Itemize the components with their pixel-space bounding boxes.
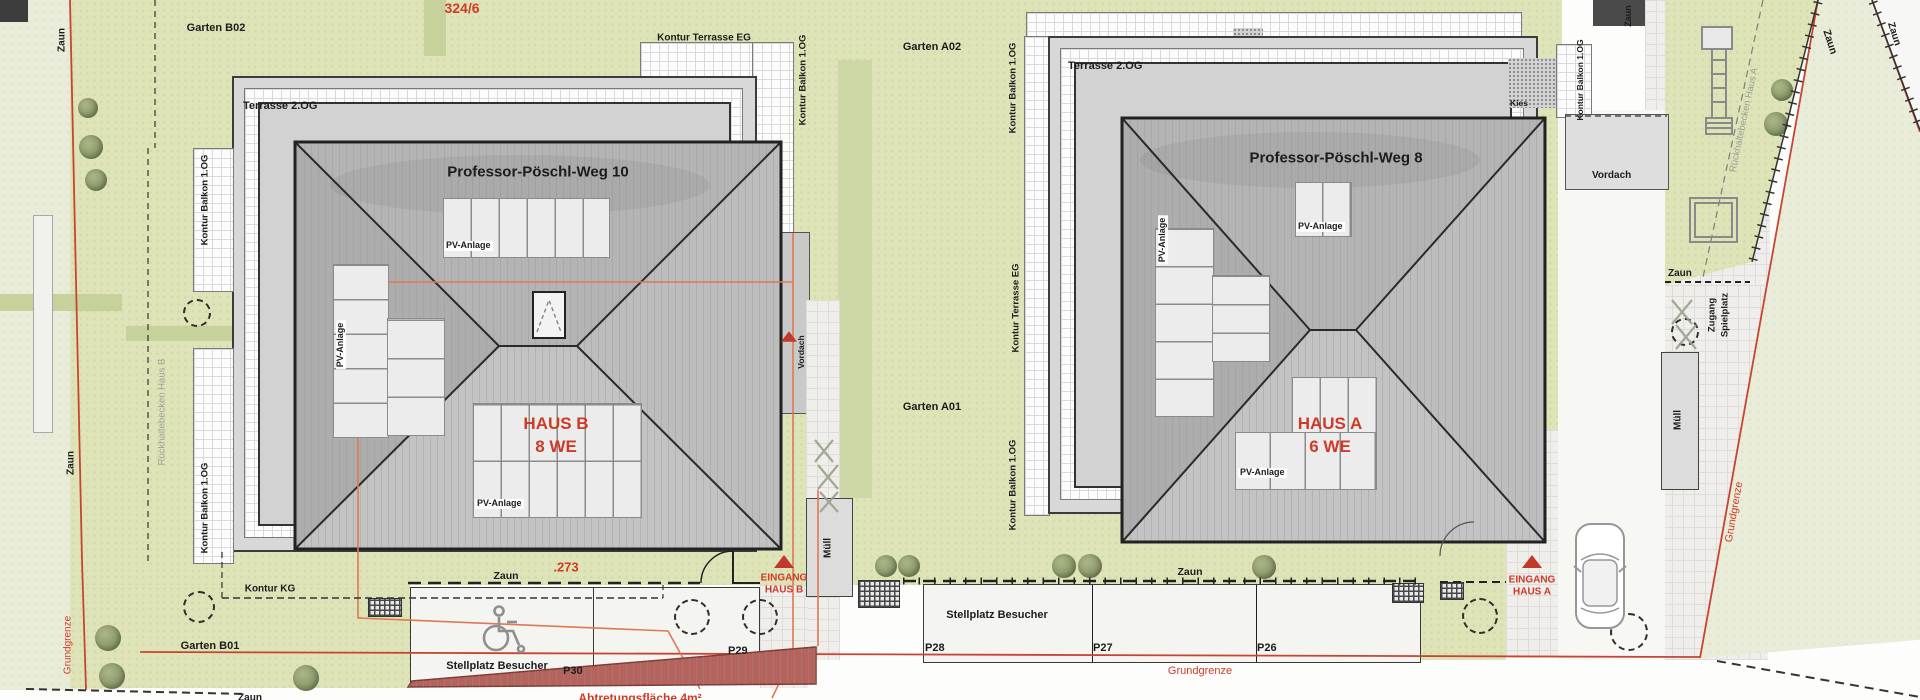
stellplatz-left-label: Stellplatz Besucher (446, 660, 547, 672)
balcony-contour-a-w (1024, 36, 1050, 516)
rueckhaltebecken-b-label: Rückhaltebecken Haus B (157, 359, 168, 466)
p26-label: P26 (1257, 642, 1277, 654)
terrasse-2og-b-label: Terrasse 2.OG (243, 100, 317, 112)
kontur-balkon-b-ne-label: Kontur Balkon 1.OG (798, 35, 809, 126)
pv-array-a-bottom-2 (1235, 432, 1377, 490)
hedge-left-1 (0, 294, 122, 311)
parcel-number: 324/6 (444, 0, 479, 16)
site-plan: 324/6 Garten B02 Kontur Terrasse EG Kont… (0, 0, 1920, 700)
balcony-contour-a-ne (1556, 44, 1592, 118)
tree (79, 135, 103, 159)
grundgrenze-left-label: Grundgrenze (63, 616, 74, 674)
kontur-terrasse-eg-b-label: Kontur Terrasse EG (657, 33, 751, 44)
abtretung-label: Abtretungsfläche 4m² (578, 691, 701, 700)
sidewalk-left (33, 215, 53, 433)
kontur-balkon-b-w-top-label: Kontur Balkon 1.OG (200, 155, 211, 246)
haus-a-title: Professor-Pöschl-Weg 8 (1249, 150, 1422, 167)
tree (875, 555, 897, 577)
eingang-a-line2: HAUS A (1513, 587, 1551, 598)
zaun-b-fence-label: Zaun (493, 570, 518, 582)
dimension-273: .273 (553, 560, 578, 575)
pv-label-a-bottom: PV-Anlage (1238, 468, 1287, 478)
haus-a-name: HAUS A (1298, 414, 1363, 434)
zugang-spielplatz-line1: Zugang (1707, 298, 1718, 332)
haus-b-name: HAUS B (523, 414, 588, 434)
tree (898, 555, 920, 577)
tree (1052, 554, 1076, 578)
planned-tree (183, 591, 215, 623)
pv-label-b-left: PV-Anlage (336, 321, 346, 370)
tree (78, 98, 98, 118)
pv-label-a-top: PV-Anlage (1296, 222, 1345, 232)
entrance-arrow-a (1522, 555, 1542, 568)
parking-lot-p28-p26 (923, 584, 1421, 663)
haus-b-units: 8 WE (535, 437, 577, 457)
stellplatz-mid-label: Stellplatz Besucher (946, 609, 1047, 621)
p27-label: P27 (1093, 642, 1113, 654)
grundgrenze-bottom-label: Grundgrenze (1168, 665, 1232, 677)
zugang-spielplatz-line2: Spielplatz (1720, 293, 1731, 337)
vordach-b-label: Vordach (796, 335, 806, 368)
planned-tree (1610, 613, 1648, 651)
tree (85, 169, 107, 191)
pv-label-b-top: PV-Anlage (444, 241, 493, 251)
zaun-bottom-cut-label: Zaun (238, 693, 262, 700)
garten-b02-label: Garten B02 (187, 22, 246, 34)
zaun-mid-label: Zaun (1177, 566, 1202, 578)
zaun-left-top-label: Zaun (57, 28, 68, 52)
planned-tree (674, 599, 710, 635)
paving-hatch-3 (1392, 583, 1424, 603)
p30-label: P30 (563, 665, 583, 677)
eingang-b-line1: EINGANG (761, 573, 808, 584)
vordach-a-label: Vordach (1592, 170, 1631, 181)
kontur-balkon-a-nw-label: Kontur Balkon 1.OG (1008, 43, 1019, 134)
eingang-b-line2: HAUS B (765, 585, 803, 596)
tree (95, 625, 121, 651)
block-top-left (0, 0, 28, 22)
p28-label: P28 (925, 642, 945, 654)
tree (1771, 79, 1793, 101)
walkway-between-houses (806, 300, 840, 660)
planned-tree (1671, 318, 1699, 346)
paving-hatch-2 (858, 580, 900, 608)
eingang-a-line1: EINGANG (1509, 575, 1556, 586)
garten-a02-label: Garten A02 (903, 41, 961, 53)
kontur-terrasse-eg-a-label: Kontur Terrasse EG (1011, 263, 1022, 352)
tree (1764, 112, 1788, 136)
tree (1078, 554, 1102, 578)
tree (1252, 555, 1276, 579)
planned-tree (1462, 598, 1498, 634)
kies-label: Kies (1510, 98, 1528, 108)
garten-a01-label: Garten A01 (903, 401, 961, 413)
stall-divider (593, 588, 594, 684)
pv-array-b-left-2 (387, 318, 445, 436)
garten-b01-label: Garten B01 (181, 640, 240, 652)
tree (293, 665, 319, 691)
muell-b-label: Müll (823, 538, 834, 558)
planned-tree (183, 299, 211, 327)
muell-a-label: Müll (1673, 410, 1684, 430)
kontur-balkon-a-ne-label: Kontur Balkon 1.OG (1575, 39, 1585, 120)
zaun-left-bottom-label: Zaun (66, 451, 77, 475)
pv-label-a-left: PV-Anlage (1158, 216, 1168, 265)
kontur-kg-label: Kontur KG (245, 584, 296, 595)
planned-tree (742, 599, 778, 635)
balcony-contour-b-ne (752, 42, 794, 234)
p29-label: P29 (728, 645, 748, 657)
terrasse-2og-a-label: Terrasse 2.OG (1068, 60, 1142, 72)
paving-hatch-1 (368, 598, 402, 617)
haus-b-title: Professor-Pöschl-Weg 10 (447, 164, 628, 181)
zaun-corridor-label: Zaun (1668, 268, 1692, 279)
side-entrance-arrow-b (781, 331, 797, 341)
entrance-arrow-b (774, 555, 794, 568)
hedge-middle (838, 60, 872, 498)
kontur-balkon-b-w-bottom-label: Kontur Balkon 1.OG (200, 463, 211, 554)
hedge-top (424, 0, 446, 56)
block-top-right (1593, 0, 1645, 26)
paving-hatch-4 (1440, 582, 1464, 600)
haus-a-units: 6 WE (1309, 437, 1351, 457)
zaun-corridor-top-label: Zaun (1623, 5, 1633, 27)
pv-array-a-left-2 (1212, 275, 1270, 362)
pv-label-b-bottom: PV-Anlage (475, 499, 524, 509)
drive-lane (1558, 110, 1665, 660)
tree (99, 663, 125, 689)
kontur-balkon-a-sw-label: Kontur Balkon 1.OG (1008, 440, 1019, 531)
